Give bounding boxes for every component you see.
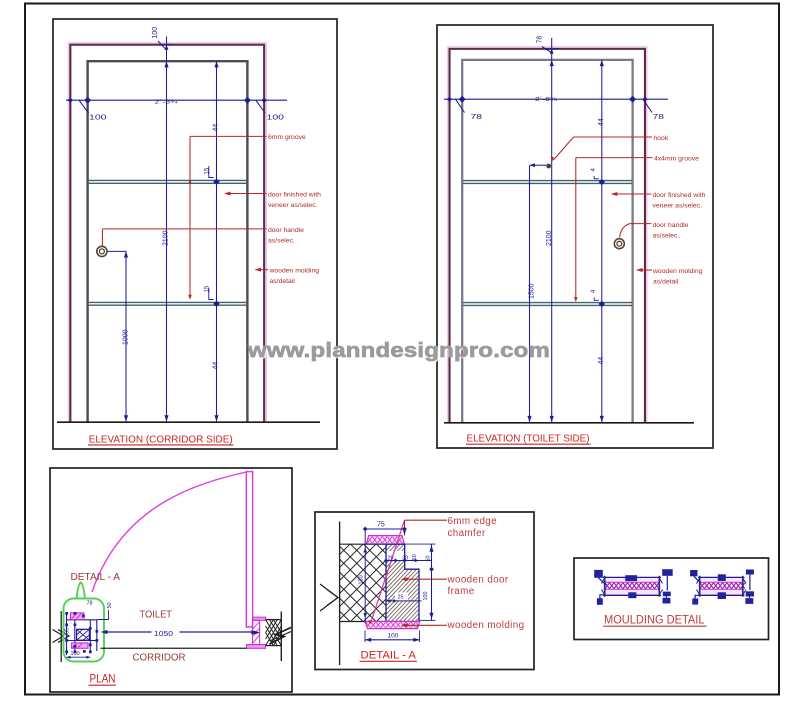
svg-text:78: 78: [653, 112, 665, 121]
svg-text:CORRIDOR: CORRIDOR: [133, 652, 186, 663]
svg-text:1500: 1500: [529, 283, 536, 299]
svg-text:as/detail: as/detail: [653, 279, 679, 286]
svg-text:www.planndesignpro.com: www.planndesignpro.com: [247, 340, 550, 362]
svg-text:50: 50: [412, 554, 418, 560]
svg-text:chamfer: chamfer: [448, 528, 487, 539]
svg-text:15: 15: [205, 167, 211, 174]
svg-text:44: 44: [213, 124, 220, 132]
svg-text:78: 78: [471, 112, 483, 121]
svg-text:2100: 2100: [162, 230, 169, 246]
svg-text:as/detail: as/detail: [270, 278, 296, 285]
svg-text:25: 25: [388, 555, 394, 561]
svg-text:30: 30: [402, 555, 408, 561]
svg-text:6mm edge: 6mm edge: [448, 516, 498, 527]
svg-text:veneer as/selec.: veneer as/selec.: [653, 203, 703, 210]
svg-text:100: 100: [152, 27, 159, 39]
svg-text:veneer as/selec.: veneer as/selec.: [268, 202, 318, 209]
svg-text:44: 44: [213, 362, 220, 370]
svg-text:DETAIL - A: DETAIL - A: [71, 572, 121, 583]
svg-text:78: 78: [537, 36, 544, 44]
svg-text:44: 44: [598, 357, 605, 365]
svg-text:door finished with: door finished with: [653, 192, 706, 199]
svg-text:6mm groove: 6mm groove: [268, 134, 306, 141]
svg-text:1050: 1050: [154, 631, 173, 638]
svg-text:DETAIL - A: DETAIL - A: [361, 650, 417, 662]
svg-text:2100: 2100: [546, 230, 553, 246]
svg-text:as/selec.: as/selec.: [268, 237, 295, 244]
svg-text:35: 35: [65, 628, 71, 634]
svg-text:wooden molding: wooden molding: [269, 268, 320, 275]
svg-text:78: 78: [87, 601, 93, 607]
svg-text:PLAN: PLAN: [90, 672, 116, 686]
svg-text:50: 50: [107, 602, 113, 608]
svg-text:100: 100: [423, 592, 429, 601]
svg-text:100: 100: [89, 113, 107, 122]
svg-text:frame: frame: [448, 586, 475, 597]
svg-text:TOILET: TOILET: [140, 610, 173, 621]
svg-text:wooden door: wooden door: [447, 574, 509, 585]
svg-text:50: 50: [425, 556, 431, 562]
svg-text:ELEVATION (TOILET SIDE): ELEVATION (TOILET SIDE): [467, 434, 590, 445]
svg-text:100: 100: [71, 651, 80, 657]
svg-text:as/selec.: as/selec.: [653, 232, 680, 239]
svg-text:150: 150: [358, 575, 364, 584]
svg-text:wooden molding: wooden molding: [652, 268, 703, 275]
svg-text:25: 25: [398, 595, 404, 601]
svg-text:100: 100: [388, 633, 399, 640]
svg-text:1000: 1000: [122, 329, 129, 345]
svg-text:MOULDING DETAIL: MOULDING DETAIL: [604, 615, 705, 627]
svg-text:door handle: door handle: [653, 222, 689, 229]
svg-text:44: 44: [598, 118, 605, 126]
svg-text:4x4mm groove: 4x4mm groove: [654, 156, 699, 163]
svg-text:2´-8¾: 2´-8¾: [535, 97, 558, 103]
svg-text:15: 15: [205, 285, 211, 292]
svg-text:door handle: door handle: [268, 227, 304, 234]
svg-text:2´-8¾: 2´-8¾: [155, 100, 179, 106]
svg-text:ELEVATION (CORRIDOR SIDE): ELEVATION (CORRIDOR SIDE): [89, 434, 233, 445]
svg-text:door finished with: door finished with: [268, 192, 321, 199]
svg-text:hook: hook: [654, 135, 669, 142]
svg-text:wooden molding: wooden molding: [447, 620, 525, 631]
svg-text:100: 100: [267, 113, 285, 122]
svg-text:75: 75: [377, 521, 385, 528]
